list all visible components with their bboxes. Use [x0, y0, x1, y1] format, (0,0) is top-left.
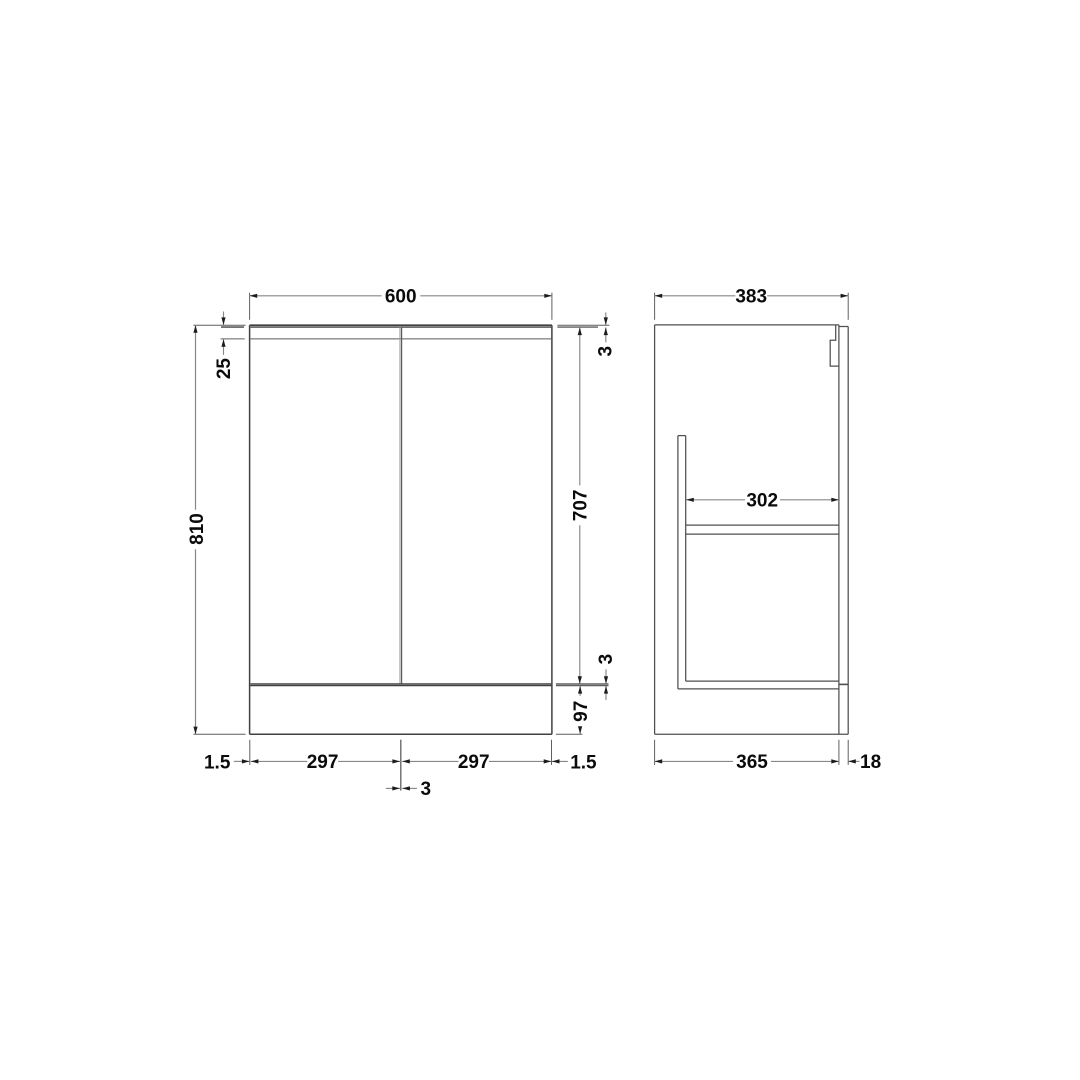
- svg-text:1.5: 1.5: [570, 753, 597, 774]
- svg-text:297: 297: [458, 752, 490, 773]
- svg-text:600: 600: [385, 286, 417, 307]
- svg-text:302: 302: [746, 490, 778, 511]
- svg-text:297: 297: [307, 752, 339, 773]
- svg-text:365: 365: [736, 752, 768, 773]
- svg-text:3: 3: [596, 346, 617, 357]
- svg-text:97: 97: [571, 701, 592, 722]
- svg-text:25: 25: [214, 358, 235, 380]
- svg-text:3: 3: [421, 779, 432, 800]
- svg-text:810: 810: [187, 513, 208, 545]
- svg-text:1.5: 1.5: [204, 753, 231, 774]
- svg-text:3: 3: [596, 654, 617, 665]
- svg-text:707: 707: [571, 490, 592, 522]
- svg-text:18: 18: [860, 752, 881, 773]
- svg-text:383: 383: [735, 286, 767, 307]
